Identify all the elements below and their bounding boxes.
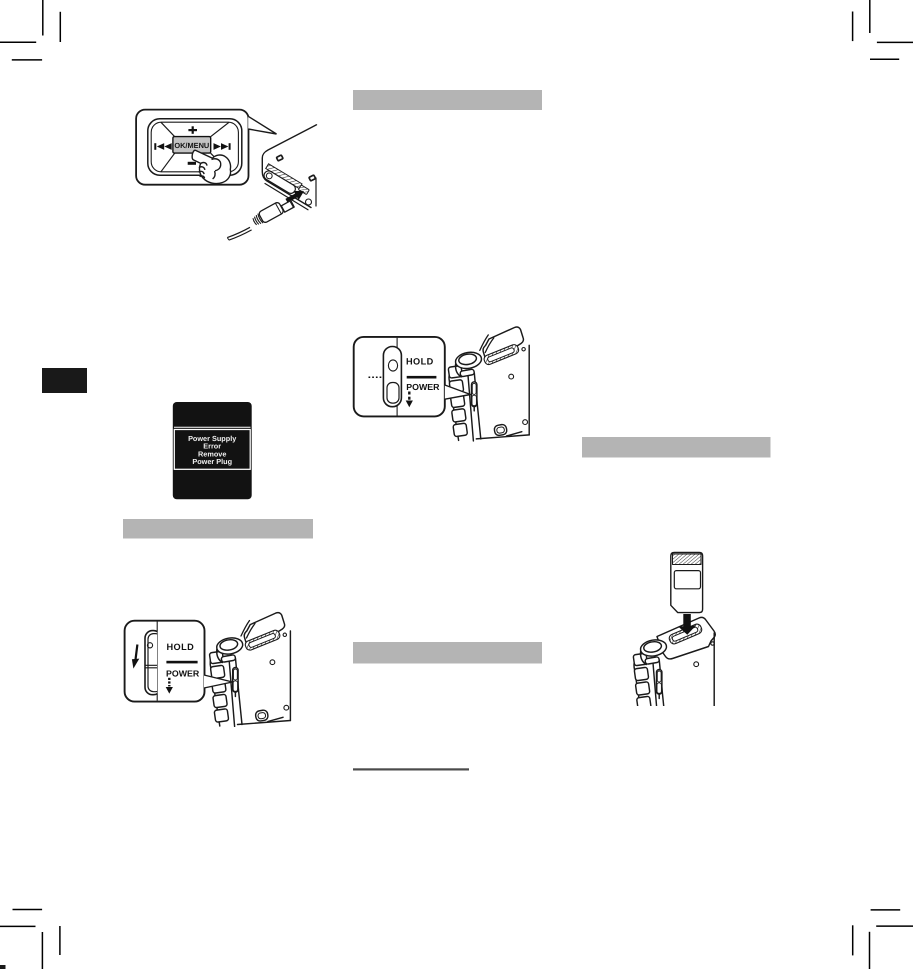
- svg-text:POWER: POWER: [406, 382, 440, 392]
- svg-text:Power Plug: Power Plug: [192, 457, 232, 466]
- svg-text:HOLD: HOLD: [406, 357, 434, 367]
- svg-text:OK/MENU: OK/MENU: [174, 141, 209, 150]
- svg-text:POWER: POWER: [166, 668, 200, 678]
- svg-text:HOLD: HOLD: [167, 642, 195, 652]
